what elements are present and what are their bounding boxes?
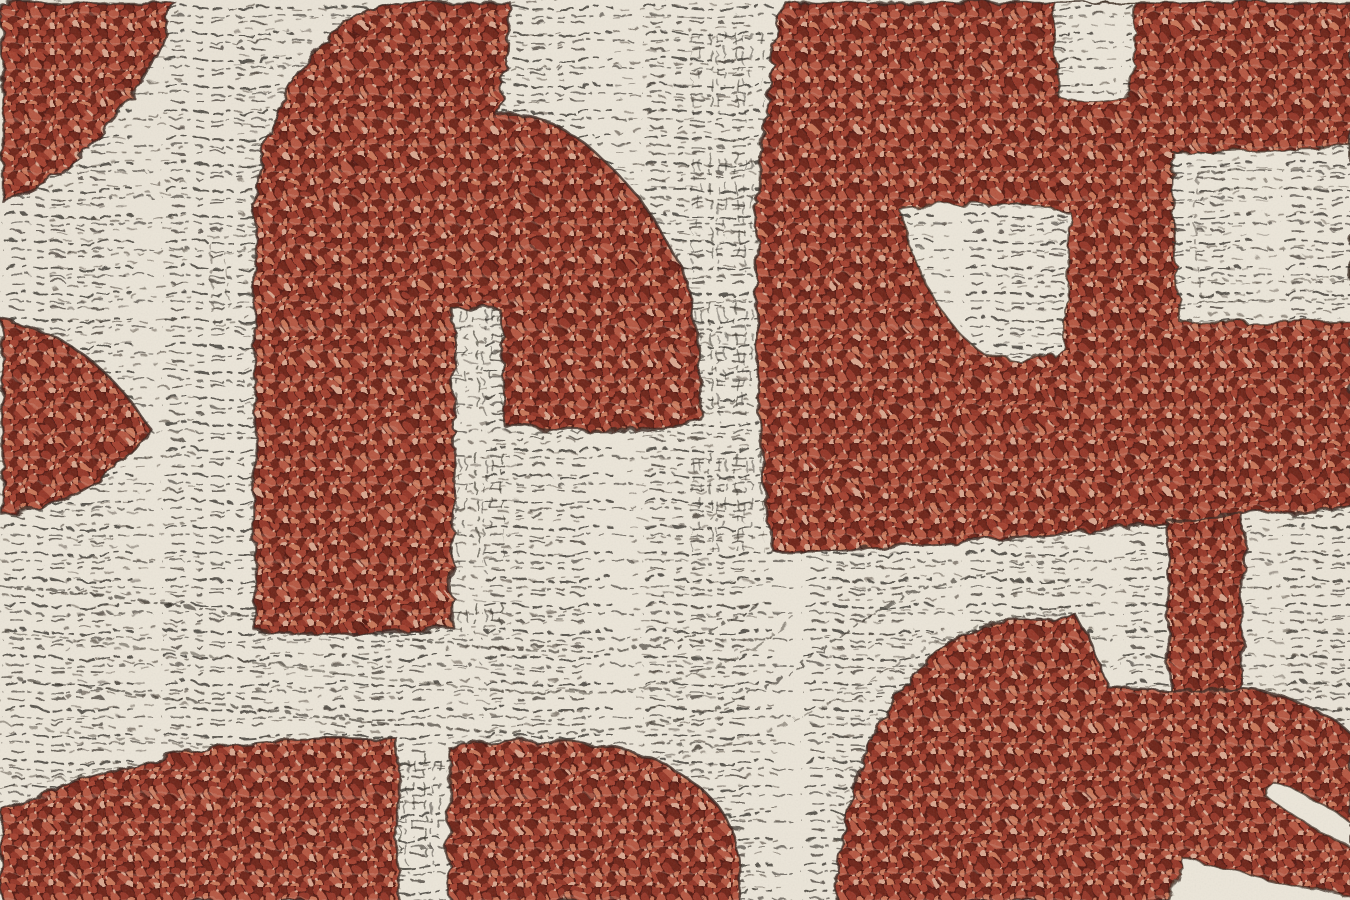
fabric-photo-stage — [0, 0, 1350, 900]
fabric-closeup-image — [0, 0, 1350, 900]
fabric-photo — [0, 0, 1350, 900]
photo-grain — [0, 0, 1350, 900]
